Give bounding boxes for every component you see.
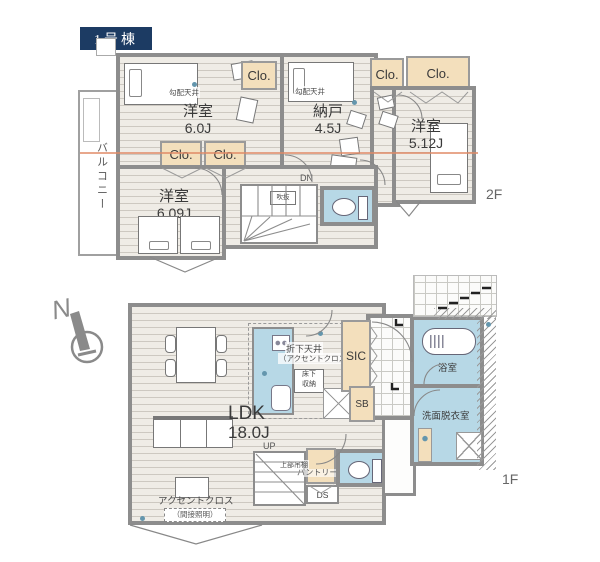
- toilet-tank-icon: [358, 196, 368, 220]
- washroom-label: 洗面脱衣室: [422, 412, 470, 422]
- section-line: [80, 152, 478, 154]
- kitchen-counter: [252, 327, 294, 415]
- compass-circle: [72, 332, 102, 362]
- bathtub-grip: [430, 335, 444, 348]
- closet-2f-a2: Clo.: [204, 141, 246, 167]
- bed-icon: [124, 63, 198, 105]
- pantry-label: パントリー: [297, 469, 337, 477]
- bed-icon: [138, 216, 178, 254]
- bathroom-label: 浴室: [438, 364, 457, 374]
- shoe-in-closet: SIC: [341, 320, 371, 392]
- fixture-dot: [192, 82, 197, 87]
- sofa-icon: [153, 416, 233, 448]
- chair-icon: [216, 359, 227, 377]
- balcony-equipment: [83, 98, 100, 142]
- exterior-hatch-right: [477, 316, 496, 470]
- toilet-tank-icon: [372, 459, 382, 483]
- closet-2f-center: Clo.: [241, 61, 277, 90]
- tv-board-icon: [175, 477, 209, 498]
- floor-plan-canvas: 1号棟 バルコニー 勾配天井 洋室 6.0J Clo. Clo. Clo. 勾配…: [0, 0, 600, 562]
- accent-wall-label: アクセントクロス: [158, 497, 234, 507]
- fixture-dot: [352, 100, 357, 105]
- toilet-2f: [320, 186, 376, 226]
- fixture-dot: [140, 516, 145, 521]
- bathroom: 浴室: [410, 316, 484, 390]
- sloped-ceiling-note: 勾配天井: [294, 86, 326, 97]
- underfloor-storage-label: 床下 収納: [294, 369, 324, 393]
- bed-icon: [180, 216, 220, 254]
- chair-icon: [165, 359, 176, 377]
- toilet-bowl-icon: [348, 461, 370, 479]
- stairs-down-label: DN: [300, 174, 313, 183]
- fixture-dot: [318, 331, 323, 336]
- void-label: 吹抜: [270, 191, 296, 205]
- accent-note-label: （間接照明）: [164, 508, 226, 522]
- closet-2f-right2: Clo.: [406, 56, 470, 90]
- washbasin-icon: [418, 428, 432, 462]
- sink-icon: [271, 385, 291, 411]
- building-number-badge: 1号棟: [80, 27, 152, 50]
- pantry: [306, 448, 336, 484]
- compass-north-label: N: [49, 292, 74, 325]
- roof-outline-box: [96, 38, 116, 56]
- washroom: 洗面脱衣室: [410, 384, 484, 466]
- chair-icon: [216, 335, 227, 353]
- dining-table-icon: [176, 327, 216, 383]
- balcony: バルコニー: [78, 90, 120, 256]
- toilet-bowl-icon: [332, 198, 356, 216]
- shoe-box: SB: [349, 386, 375, 422]
- stairs-up-label: UP: [263, 442, 276, 451]
- duct-space: DS: [306, 485, 339, 504]
- bathtub-icon: [422, 328, 476, 355]
- closet-2f-a1: Clo.: [160, 141, 202, 167]
- fixture-dot: [486, 322, 491, 327]
- room-label-ldk: LDK 18.0J: [228, 404, 270, 442]
- chair-icon: [165, 335, 176, 353]
- floor2-label: 2F: [486, 187, 502, 202]
- room-label-bedroom-b: 洋室 5.12J: [396, 116, 456, 154]
- compass-foot: [78, 351, 96, 355]
- sloped-ceiling-note: 勾配天井: [168, 87, 200, 98]
- compass: N: [49, 292, 102, 362]
- compass-needle-icon: [70, 311, 90, 351]
- room-label-bedroom-a: 洋室 6.0J: [150, 100, 246, 140]
- fixture-dot: [262, 371, 267, 376]
- floor1-label: 1F: [502, 472, 518, 487]
